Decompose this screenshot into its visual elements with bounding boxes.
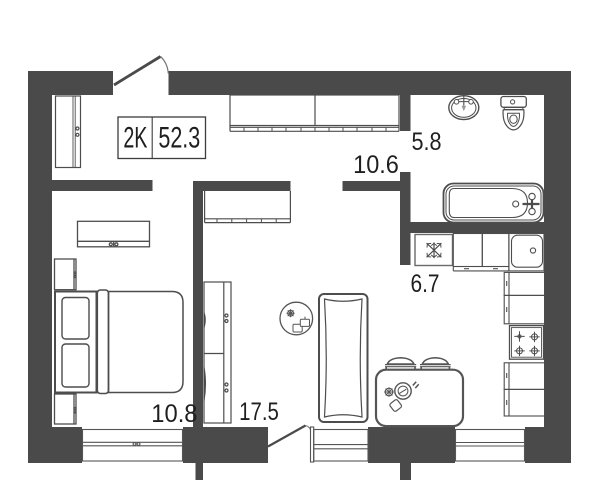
svg-text:5.8: 5.8 — [411, 128, 441, 156]
svg-text:52.3: 52.3 — [158, 120, 200, 154]
svg-text:2K: 2K — [123, 121, 147, 154]
svg-text:10.8: 10.8 — [151, 400, 197, 428]
svg-text:17.5: 17.5 — [239, 397, 279, 425]
svg-text:10.6: 10.6 — [353, 151, 399, 179]
svg-text:6.7: 6.7 — [410, 269, 439, 297]
